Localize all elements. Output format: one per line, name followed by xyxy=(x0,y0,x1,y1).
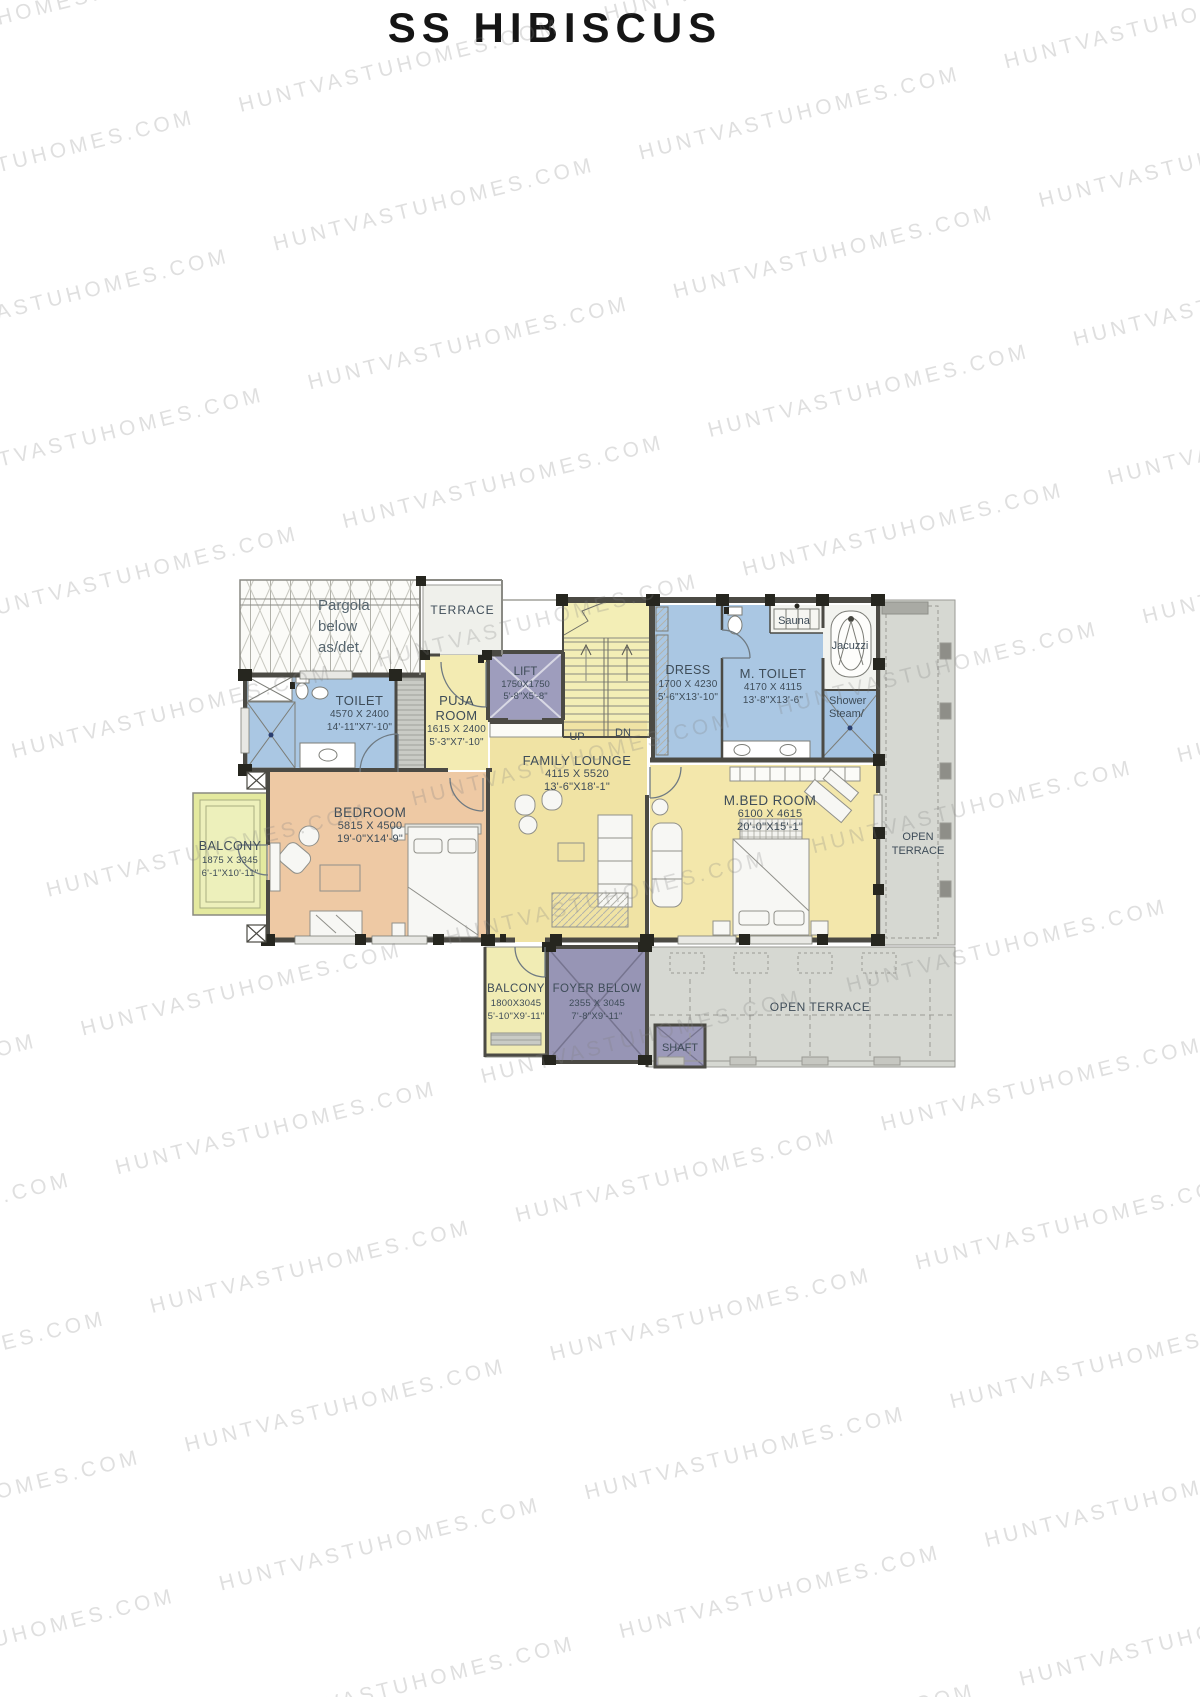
open-terrace-right-label: OPEN TERRACE xyxy=(887,830,949,858)
stairs-up-label: UP xyxy=(565,731,589,744)
page: SS HIBISCUS xyxy=(0,0,1200,1697)
sauna-label: Sauna xyxy=(768,615,820,628)
master-bedroom-label: M.BED ROOM 6100 X 4615 20'-0"X15'-1" xyxy=(708,793,832,834)
bedroom-label: BEDROOM 5815 X 4500 19'-0"X14'-9" xyxy=(308,805,432,846)
stairs-dn-label: DN xyxy=(611,727,635,740)
page-title: SS HIBISCUS xyxy=(0,4,1110,52)
open-terrace-bottom-label: OPEN TERRACE xyxy=(745,1000,895,1014)
family-lounge-label: FAMILY LOUNGE 4115 X 5520 13'-6"X18'-1" xyxy=(502,753,652,794)
foyer-below-label: FOYER BELOW 2355 X 3045 7'-8"X9'-11" xyxy=(547,982,647,1023)
jacuzzi-label: Jacuzzi xyxy=(823,640,877,653)
puja-room-label: PUJA ROOM 1615 X 2400 5'-3"X7'-10" xyxy=(426,693,487,749)
lift-label: LIFT 1750X1750 5'-8"X5'-8" xyxy=(489,666,562,703)
dress-label: DRESS 1700 X 4230 5'-6"X13'-10" xyxy=(654,663,722,704)
toilet-label: TOILET 4570 X 2400 14'-11"X7'-10" xyxy=(302,693,417,734)
shower-steam-label: Shower Steam/ xyxy=(829,695,879,721)
terrace-label: TERRACE xyxy=(423,603,502,617)
pergola-label: Pargola below as/det. xyxy=(318,595,408,658)
master-toilet-label: M. TOILET 4170 X 4115 13'-8"X13'-6" xyxy=(724,666,822,707)
balcony-left-label: BALCONY 1875 X 3345 6'-1"X10'-11" xyxy=(198,839,262,880)
shaft-label: SHAFT xyxy=(655,1042,705,1055)
floor-plan: Pargola below as/det. TERRACE TOILET 457… xyxy=(190,543,960,1073)
balcony-bottom-label: BALCONY 1800X3045 5'-10"X9'-11" xyxy=(484,982,548,1023)
